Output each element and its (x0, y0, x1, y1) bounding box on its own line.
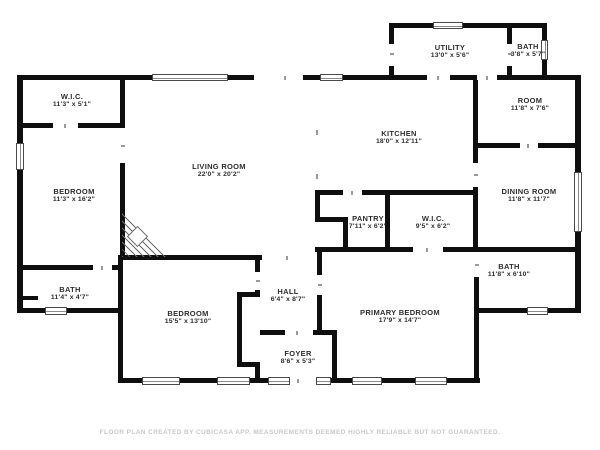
room-label-wic-top-left: W.I.C.11'3" x 5'1" (53, 92, 91, 110)
door-swing-tick (286, 256, 288, 260)
window (320, 74, 343, 81)
room-label-foyer: FOYER8'6" x 5'3" (281, 349, 316, 367)
room-label-bedroom-bottom: BEDROOM15'5" x 13'10" (165, 309, 212, 327)
wall-segment (575, 232, 581, 313)
window (268, 377, 290, 385)
wall-segment (237, 362, 260, 367)
footer-disclaimer: FLOOR PLAN CREATED BY CUBICASA APP. MEAS… (0, 429, 600, 436)
wall-segment (255, 367, 260, 383)
room-name: BATH (51, 285, 89, 294)
room-name: FOYER (281, 349, 316, 358)
wall-segment (17, 75, 152, 80)
room-label-primary-bedroom: PRIMARY BEDROOM17'9" x 14'7" (360, 308, 440, 326)
room-label-bath-east: BATH11'8" x 6'10" (488, 262, 530, 280)
room-label-living-room: LIVING ROOM22'0" x 20'2" (192, 162, 246, 180)
wall-segment (118, 255, 123, 383)
door-swing-tick (437, 76, 439, 80)
wall-segment (303, 75, 320, 80)
wall-segment (575, 75, 581, 172)
wall-segment (389, 28, 394, 44)
room-dimensions: 11'8" x 6'10" (488, 271, 530, 279)
window (142, 377, 180, 385)
door-swing-tick (256, 280, 260, 282)
door-swing-tick (296, 331, 298, 335)
room-name: KITCHEN (376, 129, 422, 138)
room-dimensions: 9'5" x 6'2" (416, 223, 451, 231)
room-name: BATH (511, 42, 546, 51)
room-name: BATH (488, 262, 530, 271)
room-label-kitchen: KITCHEN18'0" x 12'11" (376, 129, 422, 147)
room-dimensions: 7'11" x 6'2" (349, 223, 387, 231)
door-swing-tick (426, 248, 428, 252)
room-dimensions: 13'0" x 5'6" (431, 52, 470, 60)
door-swing-tick (527, 144, 529, 148)
wall-segment (389, 23, 433, 28)
wall-segment (477, 143, 520, 148)
wall-segment (120, 75, 125, 128)
window (574, 172, 582, 232)
room-dimensions: 11'8" x 7'6" (511, 105, 549, 113)
window (352, 377, 382, 385)
window (217, 377, 250, 385)
wall-segment (475, 308, 527, 313)
room-dimensions: 17'9" x 14'7" (360, 317, 440, 325)
room-label-pantry: PANTRY7'11" x 6'2" (349, 214, 387, 232)
room-dimensions: 6'4" x 8'7" (271, 296, 306, 304)
door-swing-tick (297, 379, 299, 383)
wall-segment (548, 308, 581, 313)
wall-segment (22, 296, 38, 300)
wall-segment (22, 123, 53, 128)
wall-segment (332, 335, 337, 383)
wall-segment (17, 308, 45, 313)
window (415, 377, 447, 385)
room-dimensions: 11'3" x 5'1" (53, 101, 91, 109)
room-name: W.I.C. (416, 214, 451, 223)
wall-segment (538, 143, 581, 148)
room-name: UTILITY (431, 43, 470, 52)
window (16, 143, 24, 170)
room-dimensions: 11'3" x 16'2" (53, 196, 95, 204)
wall-segment (474, 308, 479, 383)
room-label-bedroom-top-left: BEDROOM11'3" x 16'2" (53, 187, 95, 205)
wall-segment (473, 80, 478, 163)
door-swing-tick (351, 191, 353, 195)
wall-segment (228, 75, 254, 80)
wall-segment (17, 265, 93, 270)
room-name: DINING ROOM (502, 187, 557, 196)
room-name: W.I.C. (53, 92, 91, 101)
room-dimensions: 11'8" x 11'7" (502, 196, 557, 204)
room-dimensions: 18'0" x 12'11" (376, 138, 422, 146)
door-swing-tick (316, 174, 318, 179)
door-swing-tick (64, 124, 66, 128)
door-swing-tick (486, 76, 488, 80)
wall-segment (362, 190, 477, 195)
room-label-bath-left: BATH11'4" x 4'7" (51, 285, 89, 303)
wall-segment (17, 170, 23, 313)
wall-segment (477, 247, 581, 252)
window (152, 74, 228, 81)
wall-segment (315, 247, 413, 252)
room-label-bath-top: BATH3'8" x 5'7" (511, 42, 546, 60)
room-label-wic-center: W.I.C.9'5" x 6'2" (416, 214, 451, 232)
door-swing-tick (318, 284, 322, 286)
door-swing-tick (284, 76, 286, 80)
wall-segment (443, 247, 477, 252)
wall-segment (317, 295, 322, 335)
wall-segment (474, 277, 479, 308)
door-swing-tick (121, 145, 125, 147)
wall-segment (473, 187, 478, 247)
door-swing-tick (474, 174, 478, 176)
room-dimensions: 8'6" x 5'3" (281, 358, 316, 366)
room-dimensions: 3'8" x 5'7" (511, 51, 546, 59)
room-dimensions: 15'5" x 13'10" (165, 318, 212, 326)
room-dimensions: 11'4" x 4'7" (51, 294, 89, 302)
floor-plan-canvas: W.I.C.11'3" x 5'1"BEDROOM11'3" x 16'2"LI… (0, 0, 600, 450)
room-name: ROOM (511, 96, 549, 105)
room-dimensions: 22'0" x 20'2" (192, 171, 246, 179)
room-label-utility: UTILITY13'0" x 5'6" (431, 43, 470, 61)
wall-segment (255, 260, 260, 272)
room-name: PANTRY (349, 214, 387, 223)
room-name: PRIMARY BEDROOM (360, 308, 440, 317)
wall-segment (392, 75, 427, 80)
wall-segment (463, 23, 547, 28)
room-name: BEDROOM (53, 187, 95, 196)
door-swing-tick (316, 130, 318, 135)
room-name: HALL (271, 287, 306, 296)
window (316, 377, 331, 385)
window (527, 307, 548, 315)
wall-segment (237, 292, 260, 297)
wall-segment (112, 265, 123, 270)
wall-segment (382, 378, 415, 383)
door-swing-tick (475, 264, 479, 266)
floor-plan: W.I.C.11'3" x 5'1"BEDROOM11'3" x 16'2"LI… (0, 0, 600, 450)
room-label-room: ROOM11'8" x 7'6" (511, 96, 549, 114)
window (45, 307, 67, 315)
room-label-hall: HALL6'4" x 8'7" (271, 287, 306, 305)
wall-segment (180, 378, 217, 383)
window (433, 22, 463, 29)
door-swing-tick (101, 266, 103, 270)
room-name: LIVING ROOM (192, 162, 246, 171)
wall-segment (17, 75, 23, 143)
wall-segment (237, 292, 242, 367)
wall-segment (343, 75, 392, 80)
wall-segment (260, 330, 285, 335)
wall-segment (497, 75, 547, 80)
wall-segment (67, 308, 123, 313)
room-name: BEDROOM (165, 309, 212, 318)
door-swing-tick (390, 53, 394, 55)
room-label-dining-room: DINING ROOM11'8" x 11'7" (502, 187, 557, 205)
wall-segment (78, 123, 125, 128)
